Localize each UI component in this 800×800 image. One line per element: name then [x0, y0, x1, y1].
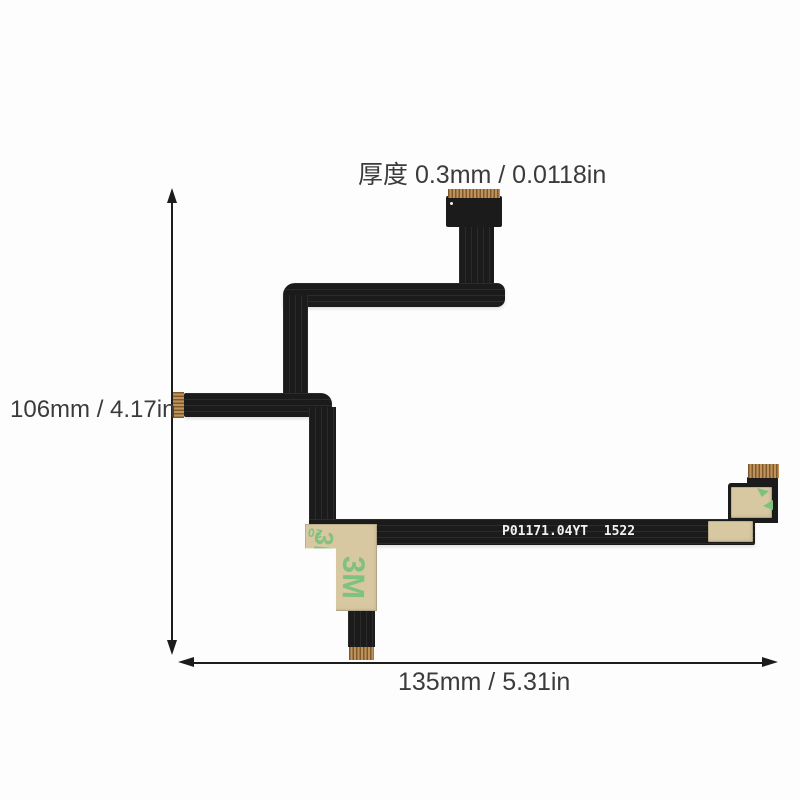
cable-vertical-segment-1 — [283, 295, 308, 400]
bottom-connector-gold-fingers — [349, 647, 374, 660]
adhesive-sticker-bottom: 20 3M 3M — [305, 524, 377, 611]
cable-vertical-segment-2 — [309, 407, 336, 528]
arrow-down-icon — [167, 640, 177, 655]
cable-band-upper — [283, 283, 505, 307]
adhesive-sticker-band-end — [708, 521, 753, 542]
width-label: 135mm / 5.31in — [398, 668, 570, 697]
thickness-label: 厚度 0.3mm / 0.0118in — [358, 155, 606, 191]
arrow-up-icon — [167, 188, 177, 203]
top-connector-body — [446, 196, 502, 227]
product-image-canvas: P01171.04YT 1522 20 3M 3M 厚度 0.3mm / 0.0… — [0, 0, 800, 800]
sticker-3m-logo: 3M — [338, 556, 370, 600]
arrow-left-icon — [178, 657, 194, 667]
right-connector-gold-fingers — [748, 464, 779, 478]
cable-part-number: P01171.04YT 1522 — [502, 525, 635, 539]
cable-bottom-segment — [348, 609, 375, 647]
cable-top-stem — [459, 225, 494, 287]
arrow-right-icon — [762, 657, 778, 667]
sticker-3m-logo: 3M — [308, 530, 338, 569]
height-label: 106mm / 4.17in — [10, 396, 164, 424]
top-connector-reflection-speck — [450, 202, 453, 205]
width-dimension-line — [192, 662, 764, 664]
